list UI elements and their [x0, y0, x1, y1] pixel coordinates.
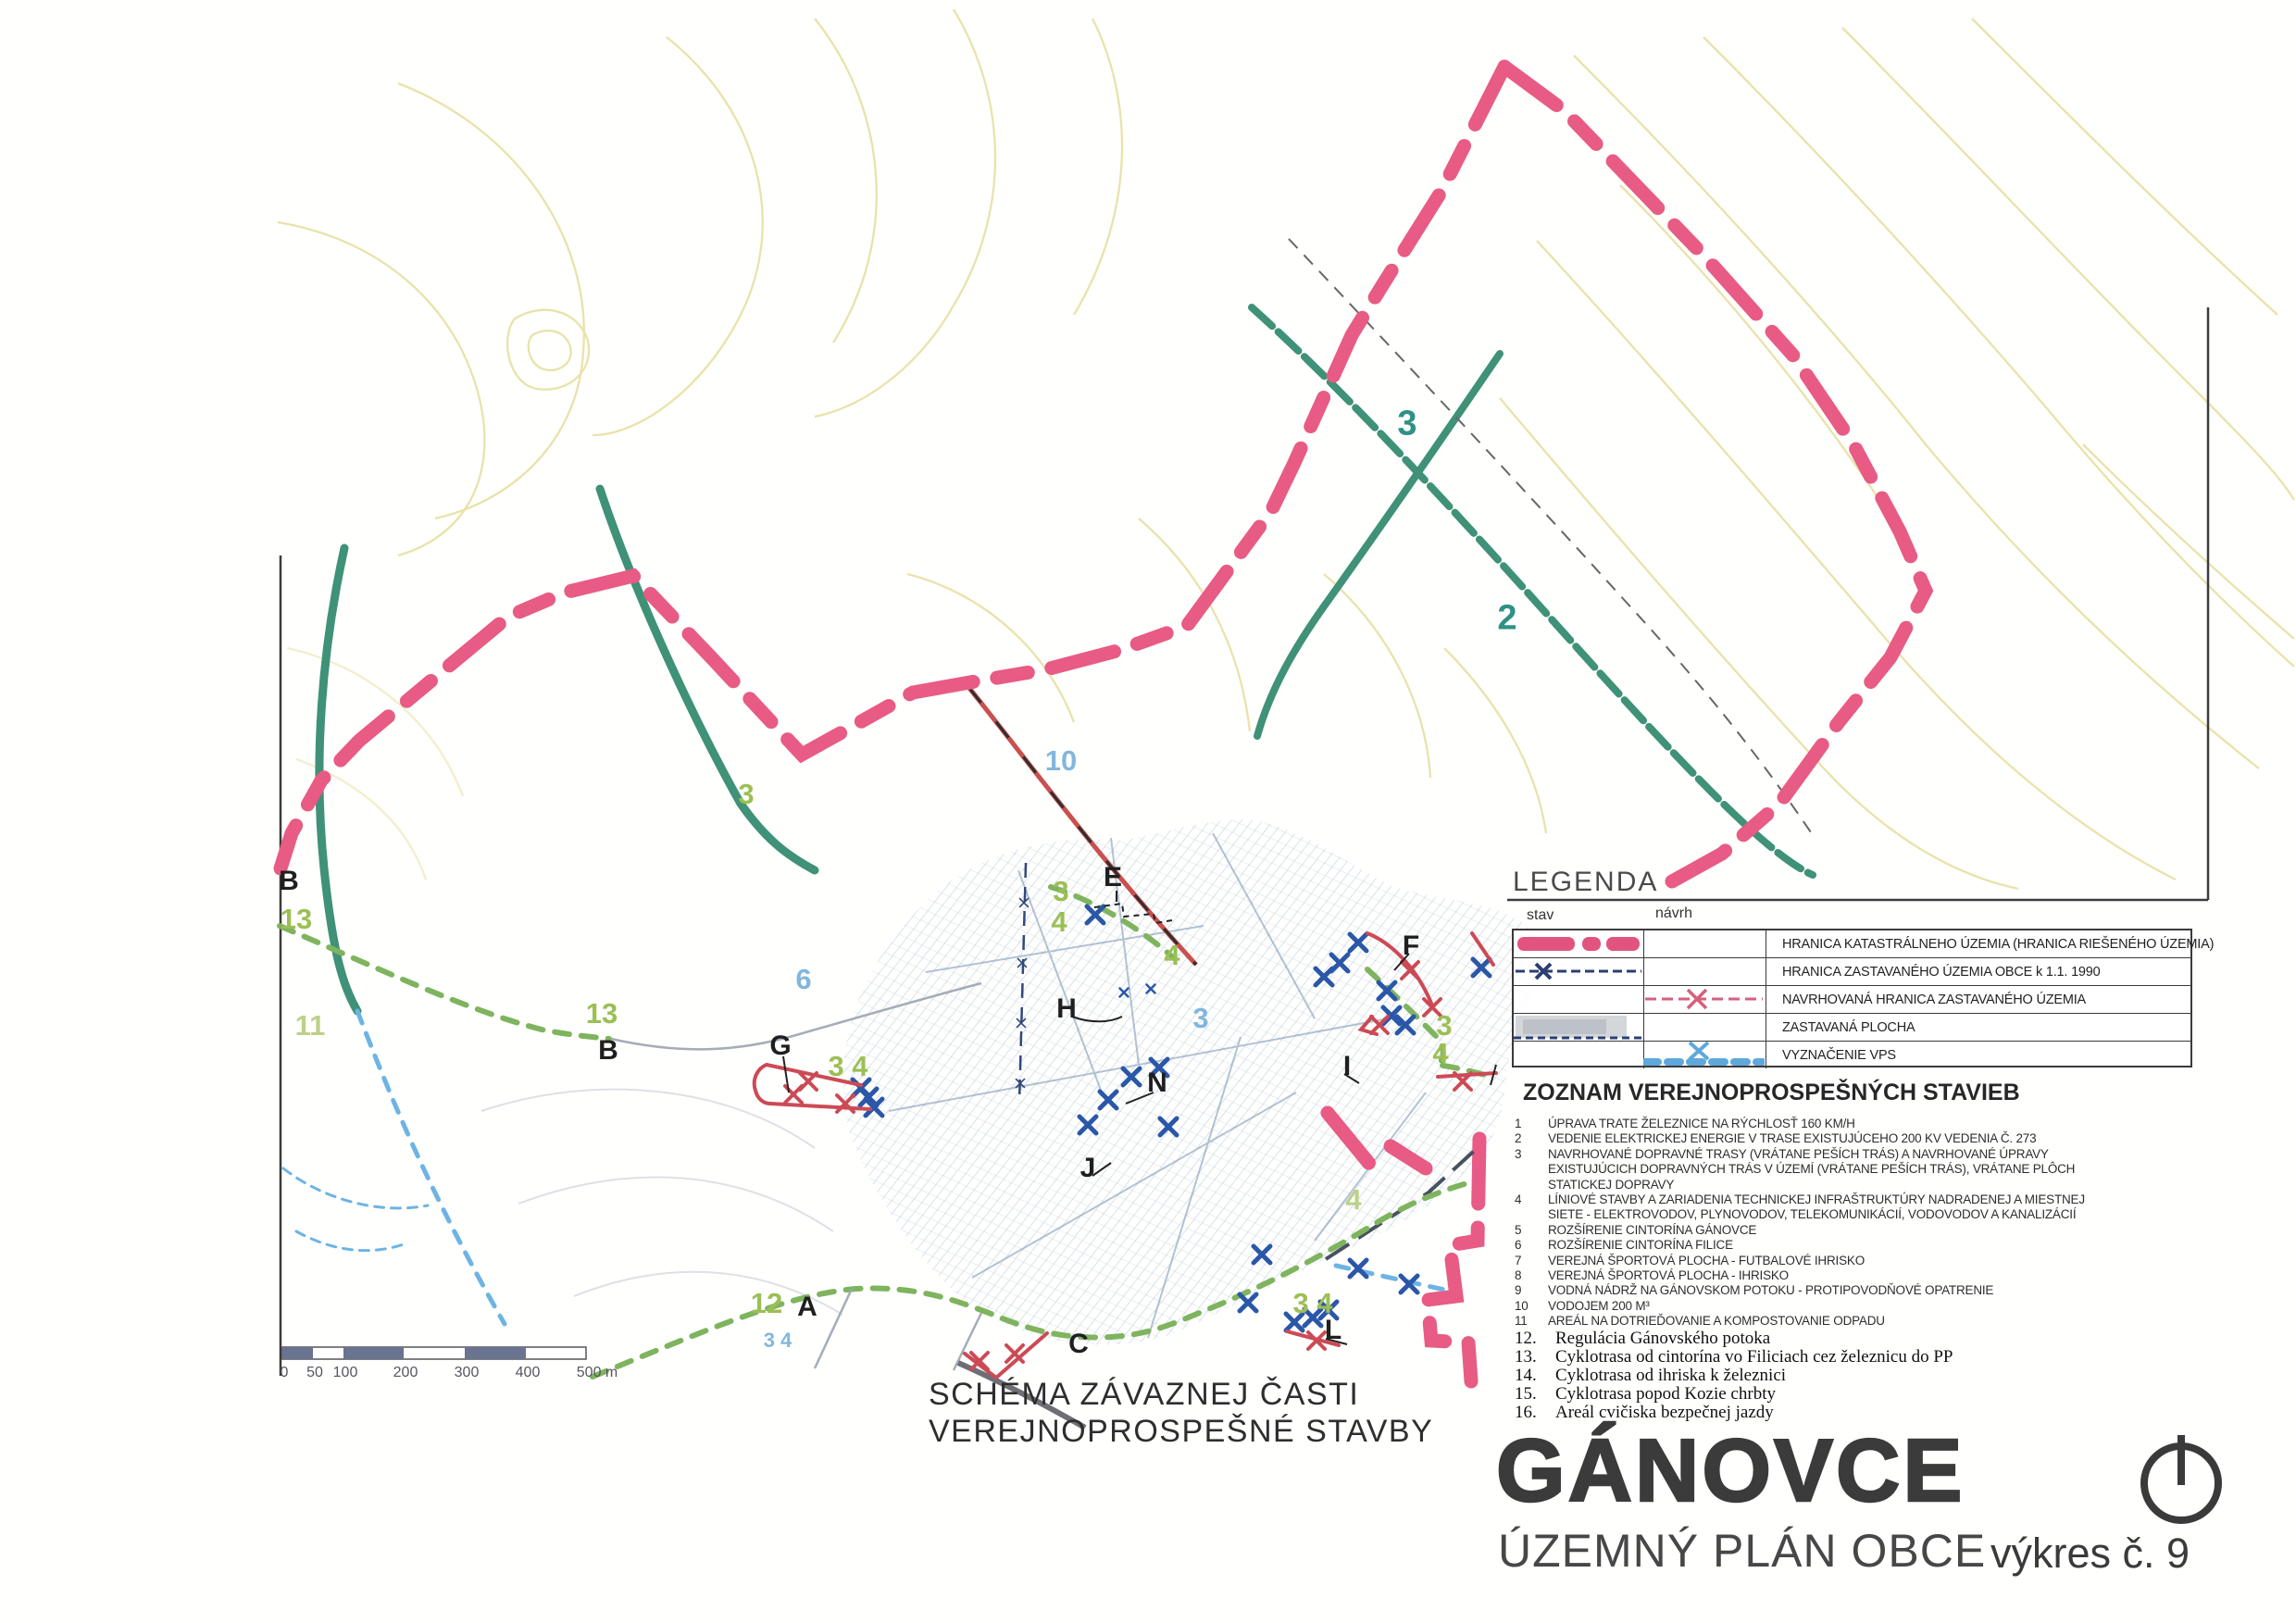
vps-item-text: VEREJNÁ ŠPORTOVÁ PLOCHA - IHRISKO — [1548, 1268, 1789, 1283]
vps-item-text: VEDENIE ELEKTRICKEJ ENERGIE V TRASE EXIS… — [1548, 1131, 2036, 1146]
vps-item-number: 5 — [1515, 1223, 1548, 1238]
scale-tick: 0 — [281, 1365, 289, 1381]
map-label: 4 — [1432, 1037, 1448, 1070]
schema-caption: SCHÉMA ZÁVAZNEJ ČASTI VEREJNOPROSPEŠNÉ S… — [929, 1376, 1433, 1450]
vps-item-number: 16. — [1515, 1404, 1555, 1422]
vps-item-text: Cyklotrasa od cintorína vo Filiciach cez… — [1555, 1348, 1953, 1367]
map-label: 3 4 — [828, 1050, 867, 1083]
map-label: L — [1325, 1315, 1341, 1346]
legend-row-builtup-1990: HRANICA ZASTAVANÉHO ÚZEMIA OBCE k 1.1. 1… — [1514, 958, 2190, 986]
legend-column-stav: stav — [1527, 907, 1554, 924]
map-label: F — [1403, 930, 1419, 962]
vps-list-item: 12.Regulácia Gánovského potoka — [1515, 1330, 2218, 1348]
vps-item-number: 14. — [1515, 1367, 1555, 1385]
vps-list-title: ZOZNAM VEREJNOPROSPEŠNÝCH STAVIEB — [1523, 1080, 2020, 1106]
sheet-number: výkres č. 9 — [1990, 1529, 2190, 1578]
legend-label: NAVRHOVANÁ HRANICA ZASTAVANÉHO ÚZEMIA — [1782, 986, 2086, 1013]
vps-item-text: ROZŠÍRENIE CINTORÍNA GÁNOVCE — [1548, 1223, 1756, 1238]
map-label: 3 — [1397, 405, 1416, 444]
vps-list-item: 9VODNÁ NÁDRŽ NA GÁNOVSKOM POTOKU - PROTI… — [1515, 1283, 2218, 1298]
legend-sample-builtup-plocha — [1514, 1014, 1644, 1041]
vps-item-number: 11 — [1515, 1314, 1548, 1329]
vps-item-number: 9 — [1515, 1283, 1548, 1298]
map-label: 3 — [1053, 875, 1068, 908]
vps-item-number: 2 — [1515, 1131, 1548, 1146]
vps-list-item: 2VEDENIE ELEKTRICKEJ ENERGIE V TRASE EXI… — [1515, 1131, 2218, 1146]
legend-label: HRANICA KATASTRÁLNEHO ÚZEMIA (HRANICA RI… — [1782, 930, 2214, 957]
map-label: 6 — [795, 963, 811, 996]
map-label: I — [1343, 1051, 1351, 1082]
map-label: 11 — [295, 1009, 326, 1042]
vps-list-item: 3NAVRHOVANÉ DOPRAVNÉ TRASY (VRÁTANE PEŠÍ… — [1515, 1147, 2218, 1192]
map-label: 4 — [1164, 939, 1179, 972]
legend-label: HRANICA ZASTAVANÉHO ÚZEMIA OBCE k 1.1. 1… — [1782, 958, 2101, 985]
legend-row-vps: VYZNAČENIE VPS — [1514, 1042, 2190, 1068]
vps-list-item: 6ROZŠÍRENIE CINTORÍNA FILICE — [1515, 1238, 2218, 1253]
scale-tick: 50 — [306, 1365, 323, 1381]
plan-subtitle: ÚZEMNÝ PLÁN OBCE — [1498, 1524, 1986, 1578]
map-label: B — [279, 866, 299, 897]
vps-item-number: 15. — [1515, 1385, 1555, 1404]
vps-item-number: 4 — [1515, 1192, 1548, 1207]
map-label: 4 — [1051, 905, 1067, 939]
scale-tick: 400 — [516, 1365, 541, 1381]
vps-item-text: Cyklotrasa popod Kozie chrbty — [1555, 1385, 1776, 1404]
legend-sample-cadastral — [1514, 930, 1644, 957]
vps-item-text: LÍNIOVÉ STAVBY A ZARIADENIA TECHNICKEJ I… — [1548, 1192, 2103, 1223]
legend-label: VYZNAČENIE VPS — [1782, 1042, 1896, 1068]
vps-item-number: 6 — [1515, 1238, 1548, 1253]
vps-item-text: VEREJNÁ ŠPORTOVÁ PLOCHA - FUTBALOVÉ IHRI… — [1548, 1254, 1865, 1268]
map-label: J — [1080, 1153, 1096, 1184]
vps-item-text: Cyklotrasa od ihriska k železnici — [1555, 1367, 1786, 1385]
legend-title: LEGENDA — [1513, 867, 1658, 898]
scale-tick: 300 — [455, 1365, 480, 1381]
vps-item-text: NAVRHOVANÉ DOPRAVNÉ TRASY (VRÁTANE PEŠÍC… — [1548, 1147, 2103, 1192]
vps-list-item: 11AREÁL NA DOTRIEĎOVANIE A KOMPOSTOVANIE… — [1515, 1314, 2218, 1329]
map-label: N — [1147, 1067, 1167, 1099]
map-label: 3 — [738, 778, 754, 811]
schema-caption-line1: SCHÉMA ZÁVAZNEJ ČASTI — [929, 1376, 1433, 1413]
legend-sample-builtup-1990 — [1514, 958, 1644, 985]
map-label: 3 — [1192, 1002, 1208, 1035]
map-label: 4 — [1345, 1183, 1361, 1217]
vps-item-text: ÚPRAVA TRATE ŽELEZNICE NA RÝCHLOSŤ 160 K… — [1548, 1117, 1855, 1131]
vps-item-text: VODOJEM 200 M³ — [1548, 1299, 1650, 1314]
vps-list-item: 1ÚPRAVA TRATE ŽELEZNICE NA RÝCHLOSŤ 160 … — [1515, 1117, 2218, 1131]
vps-item-text: ROZŠÍRENIE CINTORÍNA FILICE — [1548, 1238, 1733, 1253]
map-label: C — [1068, 1329, 1089, 1360]
vps-list-item: 8VEREJNÁ ŠPORTOVÁ PLOCHA - IHRISKO — [1515, 1268, 2218, 1283]
town-title: GÁNOVCE — [1496, 1420, 1965, 1522]
scale-tick: 200 — [393, 1365, 418, 1381]
vps-item-number: 13. — [1515, 1348, 1555, 1367]
legend-row-proposed-boundary: NAVRHOVANÁ HRANICA ZASTAVANÉHO ÚZEMIA — [1514, 986, 2190, 1014]
vps-list-item: 14.Cyklotrasa od ihriska k železnici — [1515, 1367, 2218, 1385]
legend-table: HRANICA KATASTRÁLNEHO ÚZEMIA (HRANICA RI… — [1512, 929, 2192, 1067]
vps-item-number: 12. — [1515, 1330, 1555, 1348]
vps-item-text: Areál cvičiska bezpečnej jazdy — [1555, 1404, 1774, 1422]
legend-row-builtup-plocha: ZASTAVANÁ PLOCHA — [1514, 1014, 2190, 1042]
schema-caption-line2: VEREJNOPROSPEŠNÉ STAVBY — [929, 1413, 1433, 1450]
vps-item-number: 7 — [1515, 1254, 1548, 1268]
map-label: B — [598, 1035, 618, 1067]
vps-items: 1ÚPRAVA TRATE ŽELEZNICE NA RÝCHLOSŤ 160 … — [1515, 1117, 2218, 1422]
map-label: 10 — [1045, 744, 1077, 778]
legend-sample-vps — [1643, 1042, 1766, 1068]
vps-item-text: AREÁL NA DOTRIEĎOVANIE A KOMPOSTOVANIE O… — [1548, 1314, 1885, 1329]
vps-item-number: 3 — [1515, 1147, 1548, 1162]
vps-list-item: 16.Areál cvičiska bezpečnej jazdy — [1515, 1404, 2218, 1422]
vps-item-number: 8 — [1515, 1268, 1548, 1283]
legend-label: ZASTAVANÁ PLOCHA — [1782, 1014, 1915, 1041]
map-label: 3 4 — [764, 1329, 792, 1353]
map-label: 12 — [751, 1287, 782, 1320]
legend-row-cadastral: HRANICA KATASTRÁLNEHO ÚZEMIA (HRANICA RI… — [1514, 930, 2190, 958]
map-label: A — [797, 1292, 817, 1323]
vps-item-number: 1 — [1515, 1117, 1548, 1131]
legend-column-navrh: návrh — [1655, 905, 1692, 922]
vps-list-item: 7VEREJNÁ ŠPORTOVÁ PLOCHA - FUTBALOVÉ IHR… — [1515, 1254, 2218, 1268]
map-label: 13 — [281, 903, 312, 936]
vps-item-text: VODNÁ NÁDRŽ NA GÁNOVSKOM POTOKU - PROTIP… — [1548, 1283, 1993, 1298]
vps-list-item: 13.Cyklotrasa od cintorína vo Filiciach … — [1515, 1348, 2218, 1367]
map-label: G — [769, 1030, 791, 1062]
map-label: 13 — [586, 997, 618, 1030]
scale-tick: 100 — [333, 1365, 358, 1381]
map-label: 2 — [1497, 599, 1516, 639]
vps-list-item: 4LÍNIOVÉ STAVBY A ZARIADENIA TECHNICKEJ … — [1515, 1192, 2218, 1223]
legend-sample-proposed-boundary — [1643, 986, 1766, 1013]
vps-item-text: Regulácia Gánovského potoka — [1555, 1330, 1770, 1348]
vps-list-item: 5ROZŠÍRENIE CINTORÍNA GÁNOVCE — [1515, 1223, 2218, 1238]
map-label: E — [1104, 862, 1122, 893]
vps-list-item: 15.Cyklotrasa popod Kozie chrbty — [1515, 1385, 2218, 1404]
vps-list-item: 10VODOJEM 200 M³ — [1515, 1299, 2218, 1314]
vps-item-number: 10 — [1515, 1299, 1548, 1314]
plan-sheet: 3210363 4131113312344343 43 44BBGEHFNIJA… — [0, 0, 2296, 1623]
scale-tick: 500 m — [577, 1365, 618, 1381]
map-label: H — [1056, 993, 1077, 1025]
